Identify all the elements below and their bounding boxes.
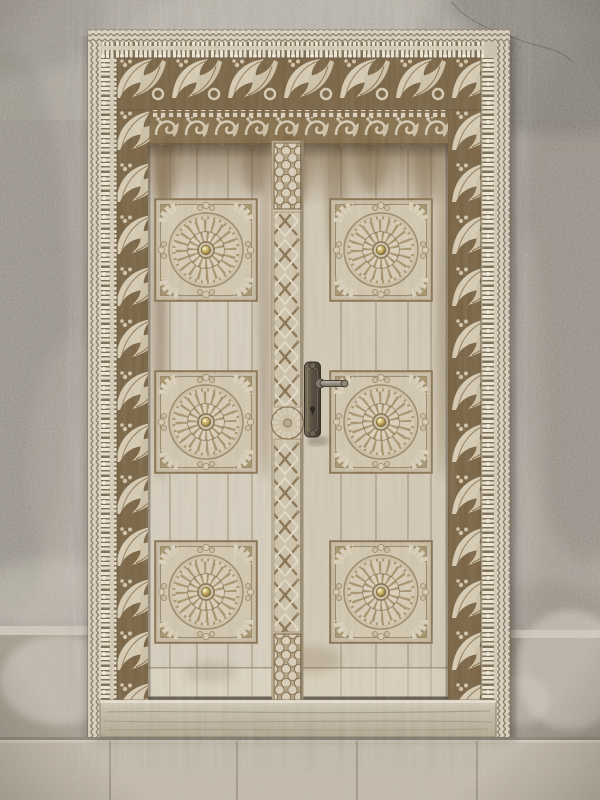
carved-door-photo: [0, 0, 600, 800]
scene-canvas: [0, 0, 600, 800]
